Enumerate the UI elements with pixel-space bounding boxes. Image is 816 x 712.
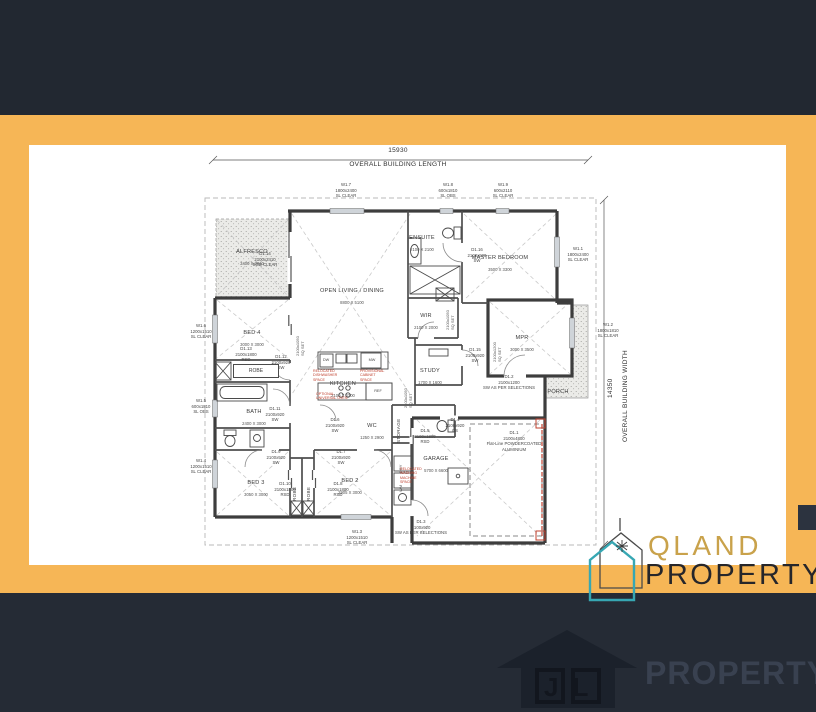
jl-house-icon: JL: [495, 626, 643, 710]
room-label-bed3: BED 3 3050 X 3000: [228, 474, 284, 503]
window-label-w1-9: W1.9 600x2110 SL CLEAR: [479, 182, 527, 199]
door-label-d1-1: D1.1 2100x4800 Flat-Line POWDERCOATED AL…: [478, 430, 550, 452]
note-provisional-cabinet: PROVISIONAL CABINET SPACE: [360, 369, 392, 382]
window-label-w1-7: W1.7 1800x2400 SL CLEAR: [322, 182, 370, 199]
jl-initials: JL: [544, 672, 602, 702]
floorplan-page: 15930 OVERALL BUILDING LENGTH 14350 OVER…: [0, 0, 816, 712]
bottom-dark-band: [0, 593, 816, 712]
door-label-d1-3: D1.3 2100x920 SW AS PER SELECTIONS: [390, 519, 452, 536]
plan-paper: [29, 145, 786, 565]
door-label-d1-7: D1.7 2100x920 SW: [316, 449, 366, 466]
room-label-bed2: BED 2 2905 X 3000: [322, 472, 378, 501]
overall-width-label: OVERALL BUILDING WIDTH: [622, 350, 630, 442]
room-label-bath: BATH 2400 X 3000: [226, 403, 282, 432]
window-label-w1-3: W1.3 1200x1510 SL CLEAR: [333, 529, 381, 546]
room-label-alfresco: ALFRESCO 3400 X 3010: [220, 243, 284, 272]
overall-length-value: 15930: [368, 147, 428, 155]
room-label-robe-2: ROBE: [292, 487, 298, 501]
qland-logo-word-2: PROPERTY: [645, 559, 816, 592]
note-sq-set-b: 2100x1050 SQ SET: [403, 388, 413, 408]
room-label-robe-3: ROBE: [306, 487, 312, 501]
qland-logo-word-1: QLAND: [648, 530, 762, 562]
star-icon: [616, 540, 628, 552]
qland-logo-backdrop: [798, 505, 816, 530]
room-label-mpr: MPR 3000 X 3500: [496, 329, 548, 358]
room-label-storage: STORAGE: [396, 419, 402, 443]
door-label-d1-9: D1.9 2100x920 SW: [251, 449, 301, 466]
fixture-label-wm: WM: [398, 485, 403, 492]
fixture-label-mw: MW: [364, 358, 380, 363]
window-label-w1-6: W1.6 1200x1510 SL CLEAR: [182, 323, 220, 340]
room-label-wc: WC 1250 X 2900: [352, 417, 392, 446]
room-label-master: MASTER BEDROOM 3500 X 3300: [458, 249, 542, 278]
door-label-d1-4: D1.4 2100x920 CS: [430, 417, 480, 434]
window-label-w1-8: W1.8 600x1810 SL OBS: [424, 182, 472, 199]
jl-watermark-text: PROPERTY: [645, 655, 816, 692]
door-label-d1-2: D1.2 2100x1200 SW AS PER SELECTIONS: [478, 374, 540, 391]
fixture-label-dw: DW: [319, 358, 333, 363]
window-label-w1-5: W1.5 600x1810 SL OBS: [182, 398, 220, 415]
note-relocated-washing-machine: RELOCATED WASHING MACHINE SPACE: [400, 467, 428, 484]
room-label-study: STUDY 1700 X 1600: [406, 362, 454, 391]
window-label-w1-4: W1.4 1200x1510 SL CLEAR: [182, 458, 220, 475]
room-label-porch: PORCH: [536, 383, 580, 401]
note-relocated-dishwasher: RELOCATED DISHWASHER SPACE: [313, 369, 345, 382]
room-label-bed4: BED 4 3000 X 3000: [224, 324, 280, 353]
note-optional-oven: OPTIONAL UNIVERSAL OVEN: [316, 392, 360, 401]
overall-width-value: 14350: [607, 378, 615, 398]
room-label-ensuite: ENSUITE 2100 X 2100: [396, 229, 448, 258]
room-label-wir: WIR 2100 X 2000: [402, 307, 450, 336]
window-label-w1-1: W1.1 1800x2400 SL CLEAR: [558, 246, 598, 263]
qland-house-icon: [586, 518, 652, 606]
note-sq-set-d: 2100x1200 SQ SET: [492, 342, 502, 362]
window-label-w1-2: W1.2 1800x1810 SL CLEAR: [588, 322, 628, 339]
room-label-living: OPEN LIVING / DINING 8800 X 5100: [296, 282, 408, 311]
overall-length-label: OVERALL BUILDING LENGTH: [338, 161, 458, 169]
fixture-label-ref: REF: [368, 389, 388, 394]
note-sq-set-a: 2100x1050 SQ SET: [295, 336, 305, 356]
room-label-robe: ROBE: [233, 364, 279, 378]
note-sq-set-c: 2100x1050 SQ SET: [445, 310, 455, 330]
